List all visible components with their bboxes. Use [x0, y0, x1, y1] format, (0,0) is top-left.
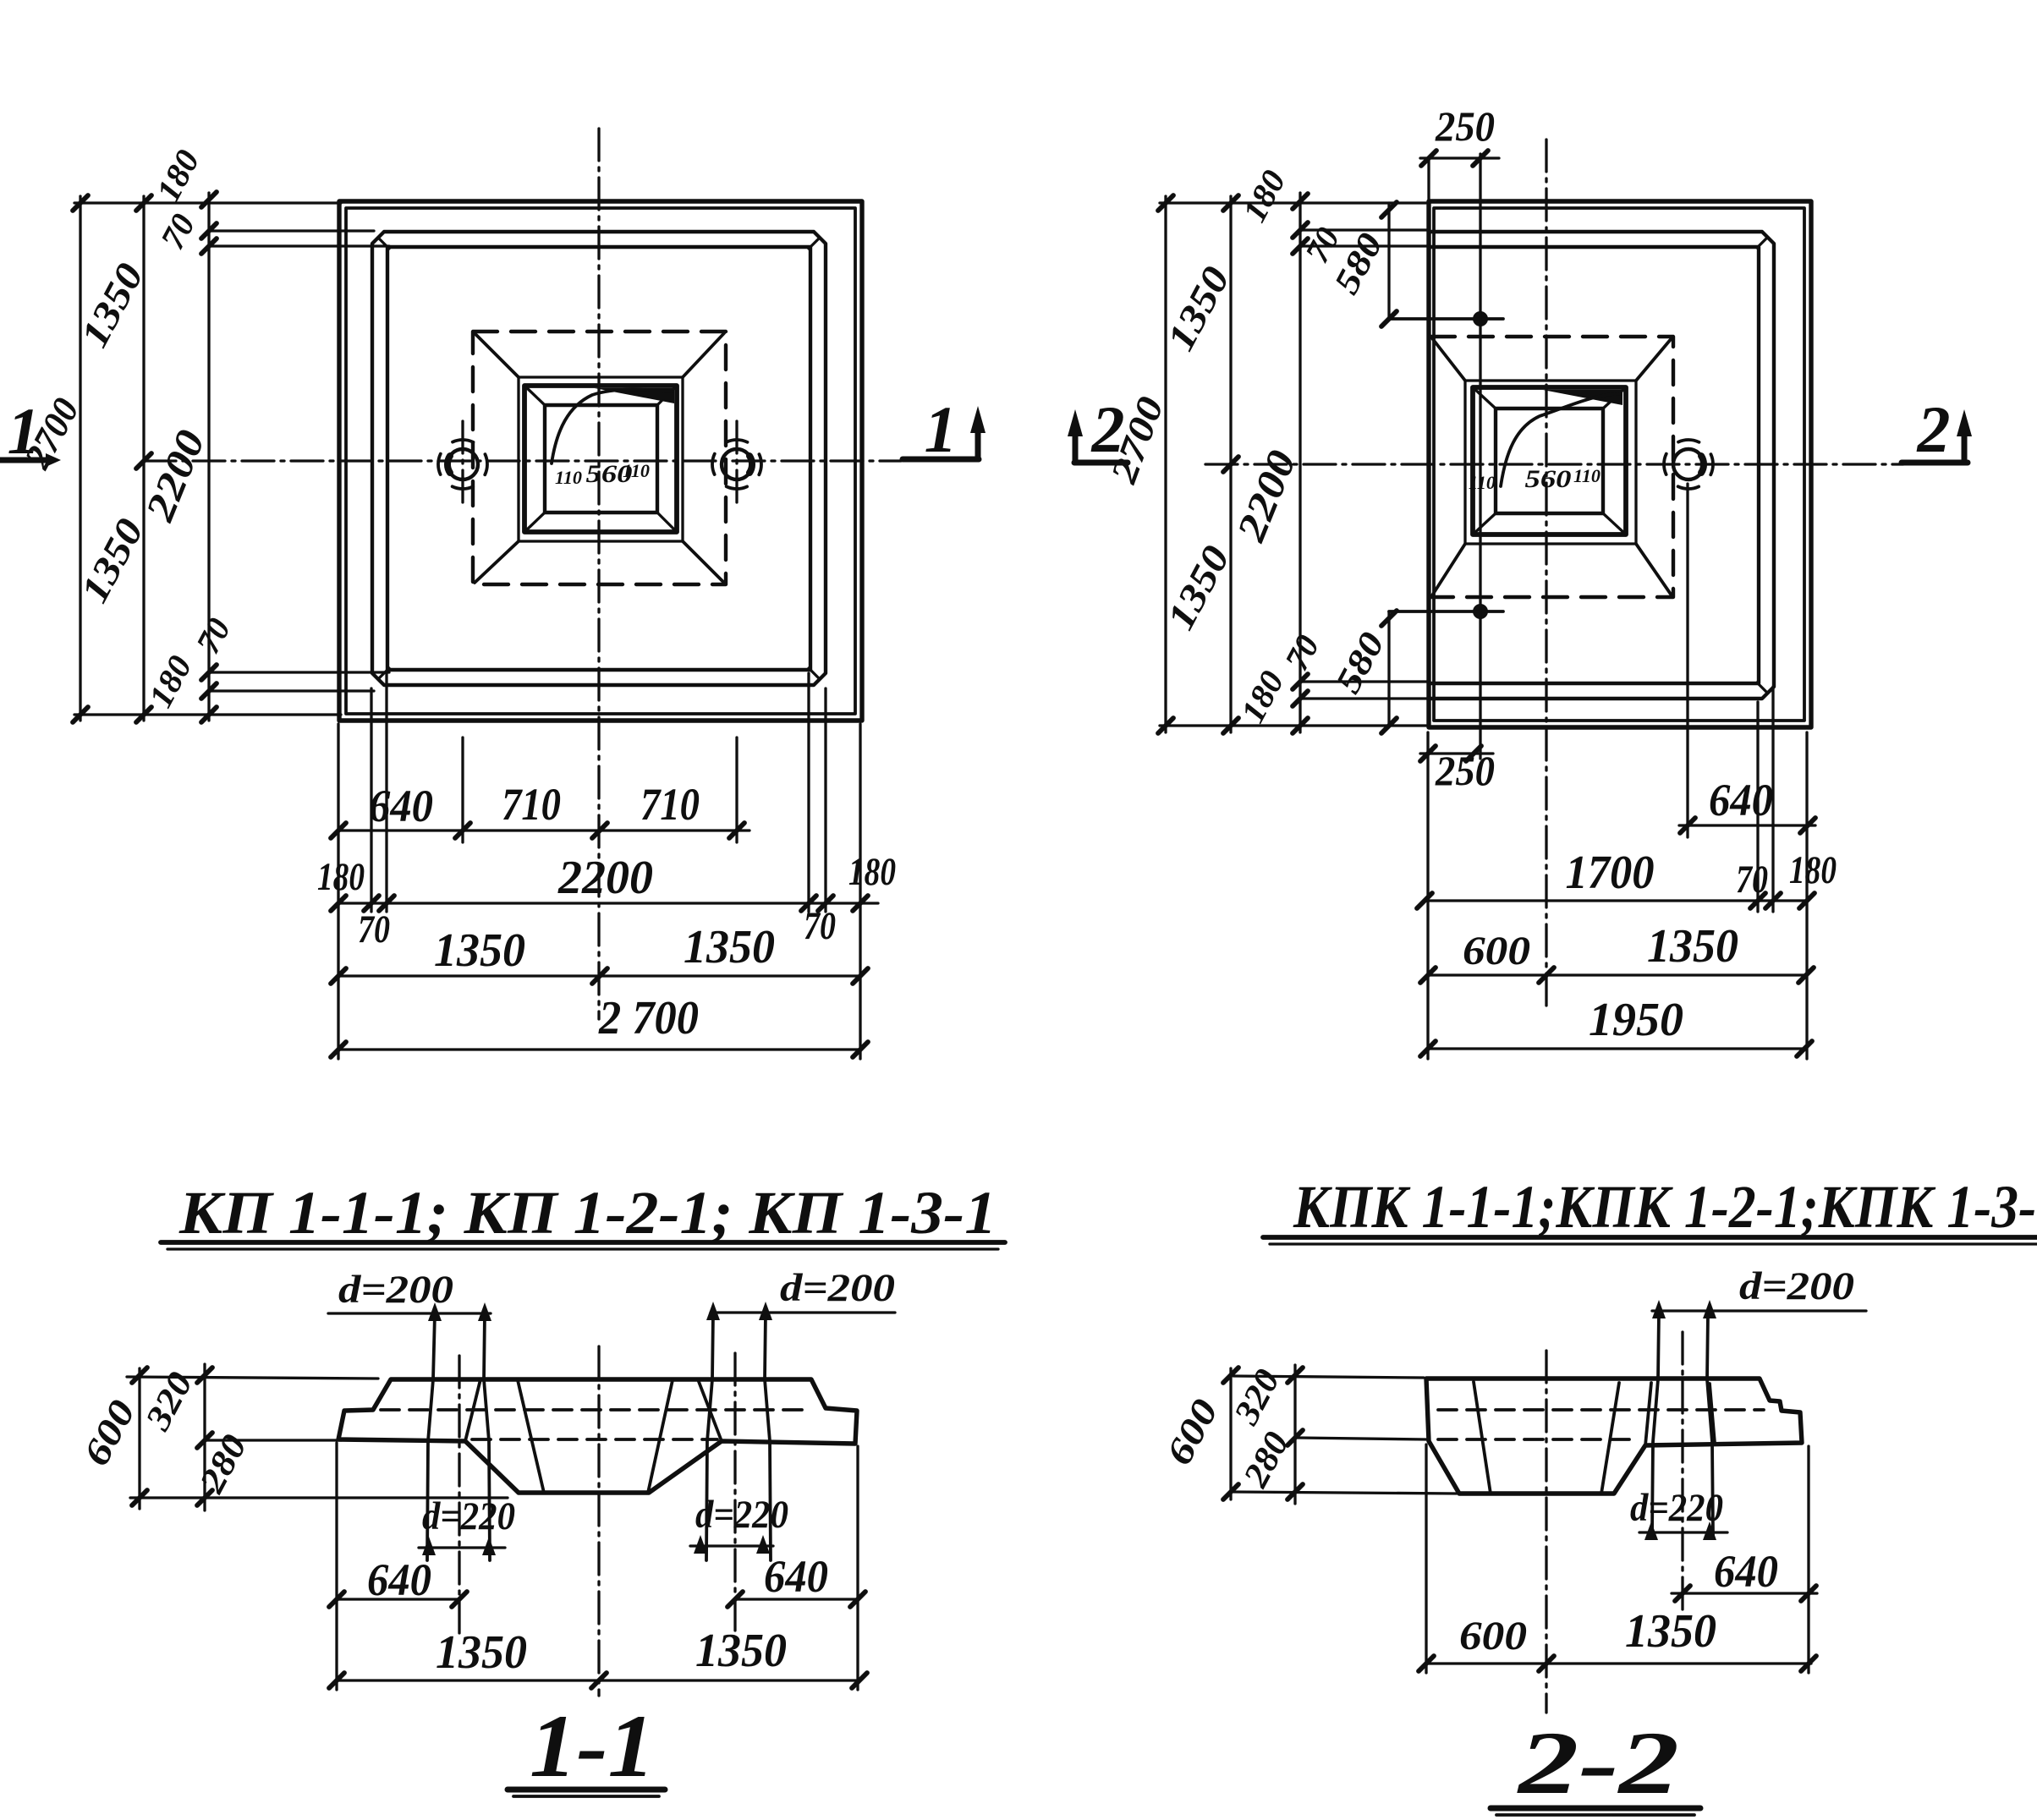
- svg-text:1: 1: [925, 392, 958, 466]
- svg-text:320: 320: [1227, 1363, 1288, 1432]
- svg-text:1350: 1350: [1625, 1605, 1716, 1658]
- svg-text:110: 110: [1469, 472, 1496, 493]
- svg-text:2: 2: [1917, 392, 1951, 466]
- svg-text:250: 250: [1435, 102, 1495, 150]
- svg-text:1350: 1350: [684, 921, 775, 973]
- svg-text:1350: 1350: [72, 256, 151, 354]
- svg-text:2-2: 2-2: [1516, 1713, 1679, 1812]
- svg-text:1350: 1350: [72, 512, 151, 610]
- svg-text:1350: 1350: [695, 1625, 787, 1677]
- svg-text:180: 180: [1235, 164, 1293, 228]
- svg-text:1950: 1950: [1589, 994, 1683, 1046]
- svg-text:180: 180: [141, 650, 200, 714]
- svg-text:180: 180: [848, 850, 896, 894]
- svg-text:d=220: d=220: [695, 1493, 788, 1537]
- svg-text:110: 110: [555, 467, 582, 488]
- svg-text:180: 180: [1789, 848, 1837, 892]
- svg-text:1350: 1350: [436, 1626, 527, 1679]
- svg-text:110: 110: [623, 460, 650, 481]
- svg-text:2200: 2200: [1228, 444, 1305, 548]
- svg-text:640: 640: [1709, 775, 1773, 825]
- svg-text:1350: 1350: [1158, 260, 1238, 358]
- svg-text:d=220: d=220: [422, 1494, 515, 1538]
- svg-text:580: 580: [1329, 626, 1392, 699]
- svg-text:70: 70: [358, 907, 390, 951]
- svg-text:70: 70: [1277, 628, 1327, 676]
- svg-text:110: 110: [1573, 465, 1600, 486]
- svg-text:1-1: 1-1: [530, 1697, 655, 1795]
- svg-text:640: 640: [764, 1551, 828, 1602]
- svg-text:КП 1-1-1; КП 1-2-1; КП 1-3-1: КП 1-1-1; КП 1-2-1; КП 1-3-1: [178, 1179, 997, 1247]
- svg-text:640: 640: [367, 1554, 431, 1605]
- svg-text:180: 180: [1233, 665, 1292, 729]
- svg-text:КПК 1-1-1;КПК 1-2-1;КПК 1-3-1: КПК 1-1-1;КПК 1-2-1;КПК 1-3-1: [1293, 1173, 2037, 1241]
- svg-text:70: 70: [189, 611, 239, 659]
- svg-text:640: 640: [369, 781, 433, 831]
- svg-text:1350: 1350: [1647, 920, 1738, 973]
- svg-text:560: 560: [1525, 465, 1572, 493]
- svg-text:640: 640: [1714, 1546, 1778, 1597]
- svg-text:d=200: d=200: [780, 1266, 895, 1310]
- svg-text:70: 70: [1736, 858, 1768, 902]
- svg-text:1700: 1700: [1566, 847, 1655, 899]
- svg-text:d=200: d=200: [338, 1268, 453, 1312]
- svg-text:70: 70: [153, 207, 203, 255]
- svg-text:710: 710: [502, 779, 561, 830]
- svg-text:600: 600: [1459, 1614, 1527, 1658]
- svg-text:2200: 2200: [137, 424, 214, 528]
- svg-text:1350: 1350: [434, 924, 525, 977]
- svg-text:180: 180: [317, 855, 365, 899]
- svg-text:600: 600: [1463, 929, 1530, 973]
- svg-text:280: 280: [1236, 1426, 1297, 1494]
- svg-text:1350: 1350: [1158, 539, 1238, 637]
- svg-text:2 700: 2 700: [598, 992, 699, 1044]
- svg-text:710: 710: [640, 779, 700, 830]
- svg-text:180: 180: [149, 144, 207, 208]
- svg-text:70: 70: [804, 904, 836, 948]
- svg-text:d=200: d=200: [1739, 1264, 1854, 1308]
- svg-text:600: 600: [75, 1393, 144, 1472]
- svg-text:600: 600: [1158, 1392, 1227, 1472]
- svg-text:2200: 2200: [557, 852, 653, 904]
- svg-text:250: 250: [1435, 747, 1495, 794]
- svg-text:d=220: d=220: [1630, 1486, 1723, 1530]
